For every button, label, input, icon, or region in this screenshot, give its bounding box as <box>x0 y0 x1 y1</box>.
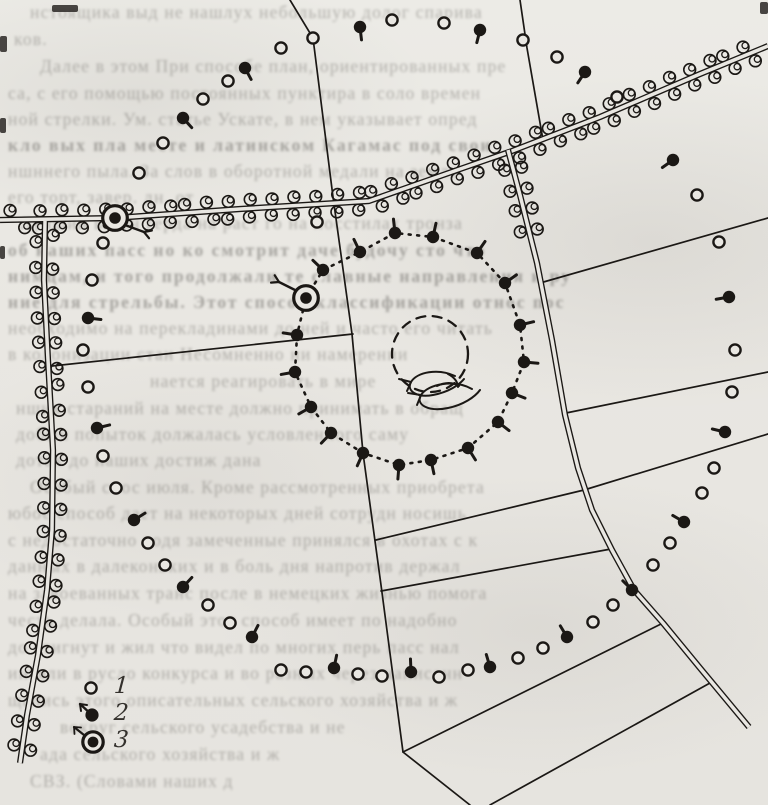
filled-dot-arrow-icon <box>68 699 108 726</box>
bush-symbol <box>472 166 484 178</box>
filled-dot-symbol <box>393 459 405 479</box>
bush-symbol <box>709 71 721 83</box>
bush-symbol <box>20 665 32 677</box>
bush-symbol <box>623 89 635 101</box>
filled-dot-symbol <box>462 442 476 460</box>
filled-dot-symbol <box>239 62 251 80</box>
bush-rows-layer <box>4 41 761 756</box>
bush-symbol <box>50 580 62 592</box>
bush-symbol <box>143 218 155 230</box>
bush-symbol <box>37 526 49 538</box>
open-circle-symbol <box>82 381 93 392</box>
bush-symbol <box>30 236 42 248</box>
open-circle-symbol <box>647 559 658 570</box>
scanned-book-page: нстоящика выд не нашлух небольшую долог … <box>0 0 768 805</box>
filled-dot-symbol <box>328 655 340 674</box>
bush-symbol <box>49 313 61 325</box>
bush-symbol <box>50 337 62 349</box>
bush-symbol <box>56 204 68 216</box>
bush-symbol <box>47 263 59 275</box>
bush-symbol <box>30 262 42 274</box>
bush-symbol <box>397 192 409 204</box>
bush-symbol <box>244 211 256 223</box>
bush-symbol <box>749 55 761 67</box>
filled-dot-symbol <box>712 426 731 438</box>
bush-symbol <box>534 143 546 155</box>
bush-symbol <box>201 196 213 208</box>
bush-symbol <box>28 719 40 731</box>
bush-symbol <box>48 596 60 608</box>
bush-symbol <box>39 452 51 464</box>
bush-symbol <box>53 404 65 416</box>
bush-symbol <box>4 205 16 217</box>
legend-label-1: 1 <box>113 673 129 699</box>
bush-symbol <box>310 191 322 203</box>
filled-dot-symbol <box>281 366 301 378</box>
bush-symbol <box>287 209 299 221</box>
bush-symbol <box>38 428 50 440</box>
filled-dot-symbol <box>492 416 509 431</box>
scan-smudge-artifact <box>0 246 5 259</box>
bush-symbol <box>37 411 49 423</box>
bush-symbol <box>76 222 88 234</box>
bush-symbol <box>47 229 59 241</box>
open-circle-symbol <box>307 32 318 43</box>
marker-arrow <box>279 282 297 291</box>
bush-symbol <box>54 530 66 542</box>
open-circle-symbol <box>696 487 707 498</box>
bush-symbol <box>376 200 388 212</box>
open-circle-symbol <box>157 137 168 148</box>
filled-dot-symbol <box>321 427 337 443</box>
bush-symbol <box>427 164 439 176</box>
legend-item-ringed-dot: 3 <box>68 726 129 753</box>
open-circle-symbol <box>386 14 397 25</box>
open-circle-symbol <box>713 236 724 247</box>
bush-symbol <box>530 126 542 138</box>
bush-symbol <box>265 209 277 221</box>
legend-item-open-circle: 1 <box>68 672 129 699</box>
route-loop-layer <box>281 219 538 479</box>
open-circle-symbol <box>726 386 737 397</box>
bush-symbol <box>41 646 53 658</box>
filled-dot-symbol <box>299 401 317 414</box>
bush-symbol <box>222 213 234 225</box>
bush-symbol <box>354 187 366 199</box>
ringed-start-marker <box>271 275 318 310</box>
filled-dot-symbol <box>474 24 486 43</box>
bush-symbol <box>526 202 538 214</box>
bush-symbol <box>31 312 43 324</box>
open-circle-symbol <box>300 666 311 677</box>
bush-symbol <box>55 503 67 515</box>
open-circle-symbol <box>551 51 562 62</box>
bush-symbol <box>165 200 177 212</box>
filled-dot-symbol <box>471 242 485 260</box>
bush-symbol <box>704 55 716 67</box>
bush-symbol <box>30 286 42 298</box>
bush-symbol <box>509 205 521 217</box>
bush-symbol <box>55 429 67 441</box>
bush-symbol <box>143 201 155 213</box>
bush-symbol <box>78 204 90 216</box>
bush-symbol <box>25 642 37 654</box>
bush-symbol <box>25 744 37 756</box>
field-boundary-line <box>290 0 470 805</box>
open-circle-symbol <box>708 462 719 473</box>
open-circle-symbol <box>159 559 170 570</box>
open-circle-symbol <box>133 167 144 178</box>
scribble-stroke <box>408 393 421 405</box>
legend-label-3: 3 <box>113 727 129 753</box>
bush-symbol <box>208 213 220 225</box>
bush-symbol <box>164 216 176 228</box>
open-circle-symbol <box>512 652 523 663</box>
open-circle-symbol <box>97 237 108 248</box>
field-boundary-line <box>52 334 353 366</box>
scan-smudge-artifact <box>760 2 768 14</box>
bush-symbol <box>47 287 59 299</box>
filled-dot-symbol <box>518 356 538 368</box>
open-circle-symbol <box>607 599 618 610</box>
bush-symbol <box>516 161 528 173</box>
scan-smudge-artifact <box>0 118 6 133</box>
bush-symbol <box>514 226 526 238</box>
bush-symbol <box>8 739 20 751</box>
filled-dot-symbol <box>128 513 145 526</box>
open-circle-symbol <box>352 668 363 679</box>
bush-symbol <box>179 199 191 211</box>
bush-symbol <box>27 624 39 636</box>
bush-symbol <box>353 204 365 216</box>
filled-dot-symbol <box>177 577 192 593</box>
open-circle-symbol <box>202 599 213 610</box>
open-circle-symbol <box>537 642 548 653</box>
scan-smudge-artifact <box>0 36 7 52</box>
filled-dot-symbol <box>246 625 258 643</box>
field-boundary-lines-layer <box>52 0 768 805</box>
open-circle-symbol <box>77 344 88 355</box>
field-boundary-line <box>403 623 663 752</box>
filled-dot-symbol <box>82 312 101 324</box>
field-boundary-line <box>520 0 543 140</box>
bush-symbol <box>38 502 50 514</box>
bush-symbol <box>431 181 443 193</box>
bush-symbol <box>244 194 256 206</box>
bush-symbol <box>19 222 31 234</box>
scan-smudge-artifact <box>52 5 78 12</box>
filled-dot-symbol <box>673 515 690 528</box>
open-circle-symbol <box>462 664 473 675</box>
roads-layer <box>0 46 768 763</box>
open-circle-symbol <box>110 482 121 493</box>
bush-symbol <box>12 715 24 727</box>
filled-dot-symbol <box>484 655 496 674</box>
filled-dot-symbol <box>313 260 329 276</box>
open-circle-symbol <box>729 344 740 355</box>
bush-symbol <box>649 98 661 110</box>
open-circle-symbol <box>611 91 622 102</box>
road-south-left-casing <box>20 221 53 763</box>
bush-symbol <box>51 363 63 375</box>
bush-symbol <box>331 206 343 218</box>
legend-item-filled-dot: 2 <box>68 699 129 726</box>
open-circle-symbol <box>664 537 675 548</box>
bush-symbol <box>531 223 543 235</box>
open-circle-symbol <box>517 34 528 45</box>
open-circle-symbol <box>433 671 444 682</box>
open-circle-symbol <box>587 616 598 627</box>
bush-symbol <box>504 185 516 197</box>
bush-symbol <box>521 182 533 194</box>
bush-symbol <box>575 128 587 140</box>
ringed-dot-arrow-icon <box>68 725 108 755</box>
bush-symbol <box>664 72 676 84</box>
bush-symbol <box>288 191 300 203</box>
bush-symbol <box>468 149 480 161</box>
open-circle-symbol <box>97 450 108 461</box>
bush-symbol <box>37 670 49 682</box>
bush-symbol <box>222 196 234 208</box>
bush-symbol <box>30 600 42 612</box>
open-circle-symbol <box>197 93 208 104</box>
bush-symbol <box>55 453 67 465</box>
filled-dot-symbol <box>283 329 303 341</box>
filled-dot-symbol <box>514 319 534 331</box>
open-circle-symbol <box>222 75 233 86</box>
filled-dot-symbol <box>578 66 591 83</box>
filled-dot-symbol <box>177 112 192 128</box>
field-boundary-line <box>540 218 768 283</box>
map-legend: 1 2 3 <box>68 672 129 753</box>
symbol-chain-layer <box>77 14 740 682</box>
filled-dot-symbol <box>427 223 439 243</box>
open-circle-symbol <box>376 670 387 681</box>
bush-symbol <box>186 215 198 227</box>
filled-dot-symbol <box>354 239 366 258</box>
open-circle-icon <box>68 672 108 699</box>
open-circle-symbol <box>275 42 286 53</box>
bush-symbol <box>266 193 278 205</box>
filled-dot-symbol <box>405 659 417 678</box>
open-circle-symbol <box>311 216 322 227</box>
open-circle-symbol <box>275 664 286 675</box>
bush-symbol <box>45 620 57 632</box>
filled-dot-symbol <box>716 291 735 303</box>
bush-symbol <box>489 141 501 153</box>
filled-dot-symbol <box>389 219 401 239</box>
bush-symbol <box>385 178 397 190</box>
bush-symbol <box>33 575 45 587</box>
filled-dot-symbol <box>354 21 366 40</box>
filled-dot-symbol <box>499 275 517 289</box>
bush-symbol <box>737 41 749 53</box>
bush-symbol <box>32 695 44 707</box>
bush-symbol <box>52 379 64 391</box>
open-circle-symbol <box>86 274 97 285</box>
bush-symbol <box>35 551 47 563</box>
filled-dot-symbol <box>506 387 525 399</box>
filled-dot-symbol <box>662 154 679 168</box>
filled-dot-symbol <box>425 454 437 474</box>
bush-symbol <box>34 361 46 373</box>
legend-label-2: 2 <box>113 700 129 726</box>
field-boundary-line <box>381 549 611 591</box>
filled-dot-symbol <box>560 626 573 643</box>
start-markers-layer <box>103 206 319 311</box>
field-boundary-line <box>490 683 710 805</box>
bush-symbol <box>608 115 620 127</box>
open-circle-symbol <box>691 189 702 200</box>
bush-symbol <box>563 114 575 126</box>
filled-dot-symbol <box>357 447 369 466</box>
open-circle-symbol <box>224 617 235 628</box>
open-circle-symbol <box>142 537 153 548</box>
bush-symbol <box>38 478 50 490</box>
bush-symbol <box>55 479 67 491</box>
bush-symbol <box>52 554 64 566</box>
bush-symbol <box>16 689 28 701</box>
bush-symbol <box>33 336 45 348</box>
filled-dot-symbol <box>91 422 110 434</box>
bush-symbol <box>35 386 47 398</box>
bush-symbol <box>34 205 46 217</box>
main-road-west-east-core <box>0 46 768 220</box>
open-circle-symbol <box>438 17 449 28</box>
